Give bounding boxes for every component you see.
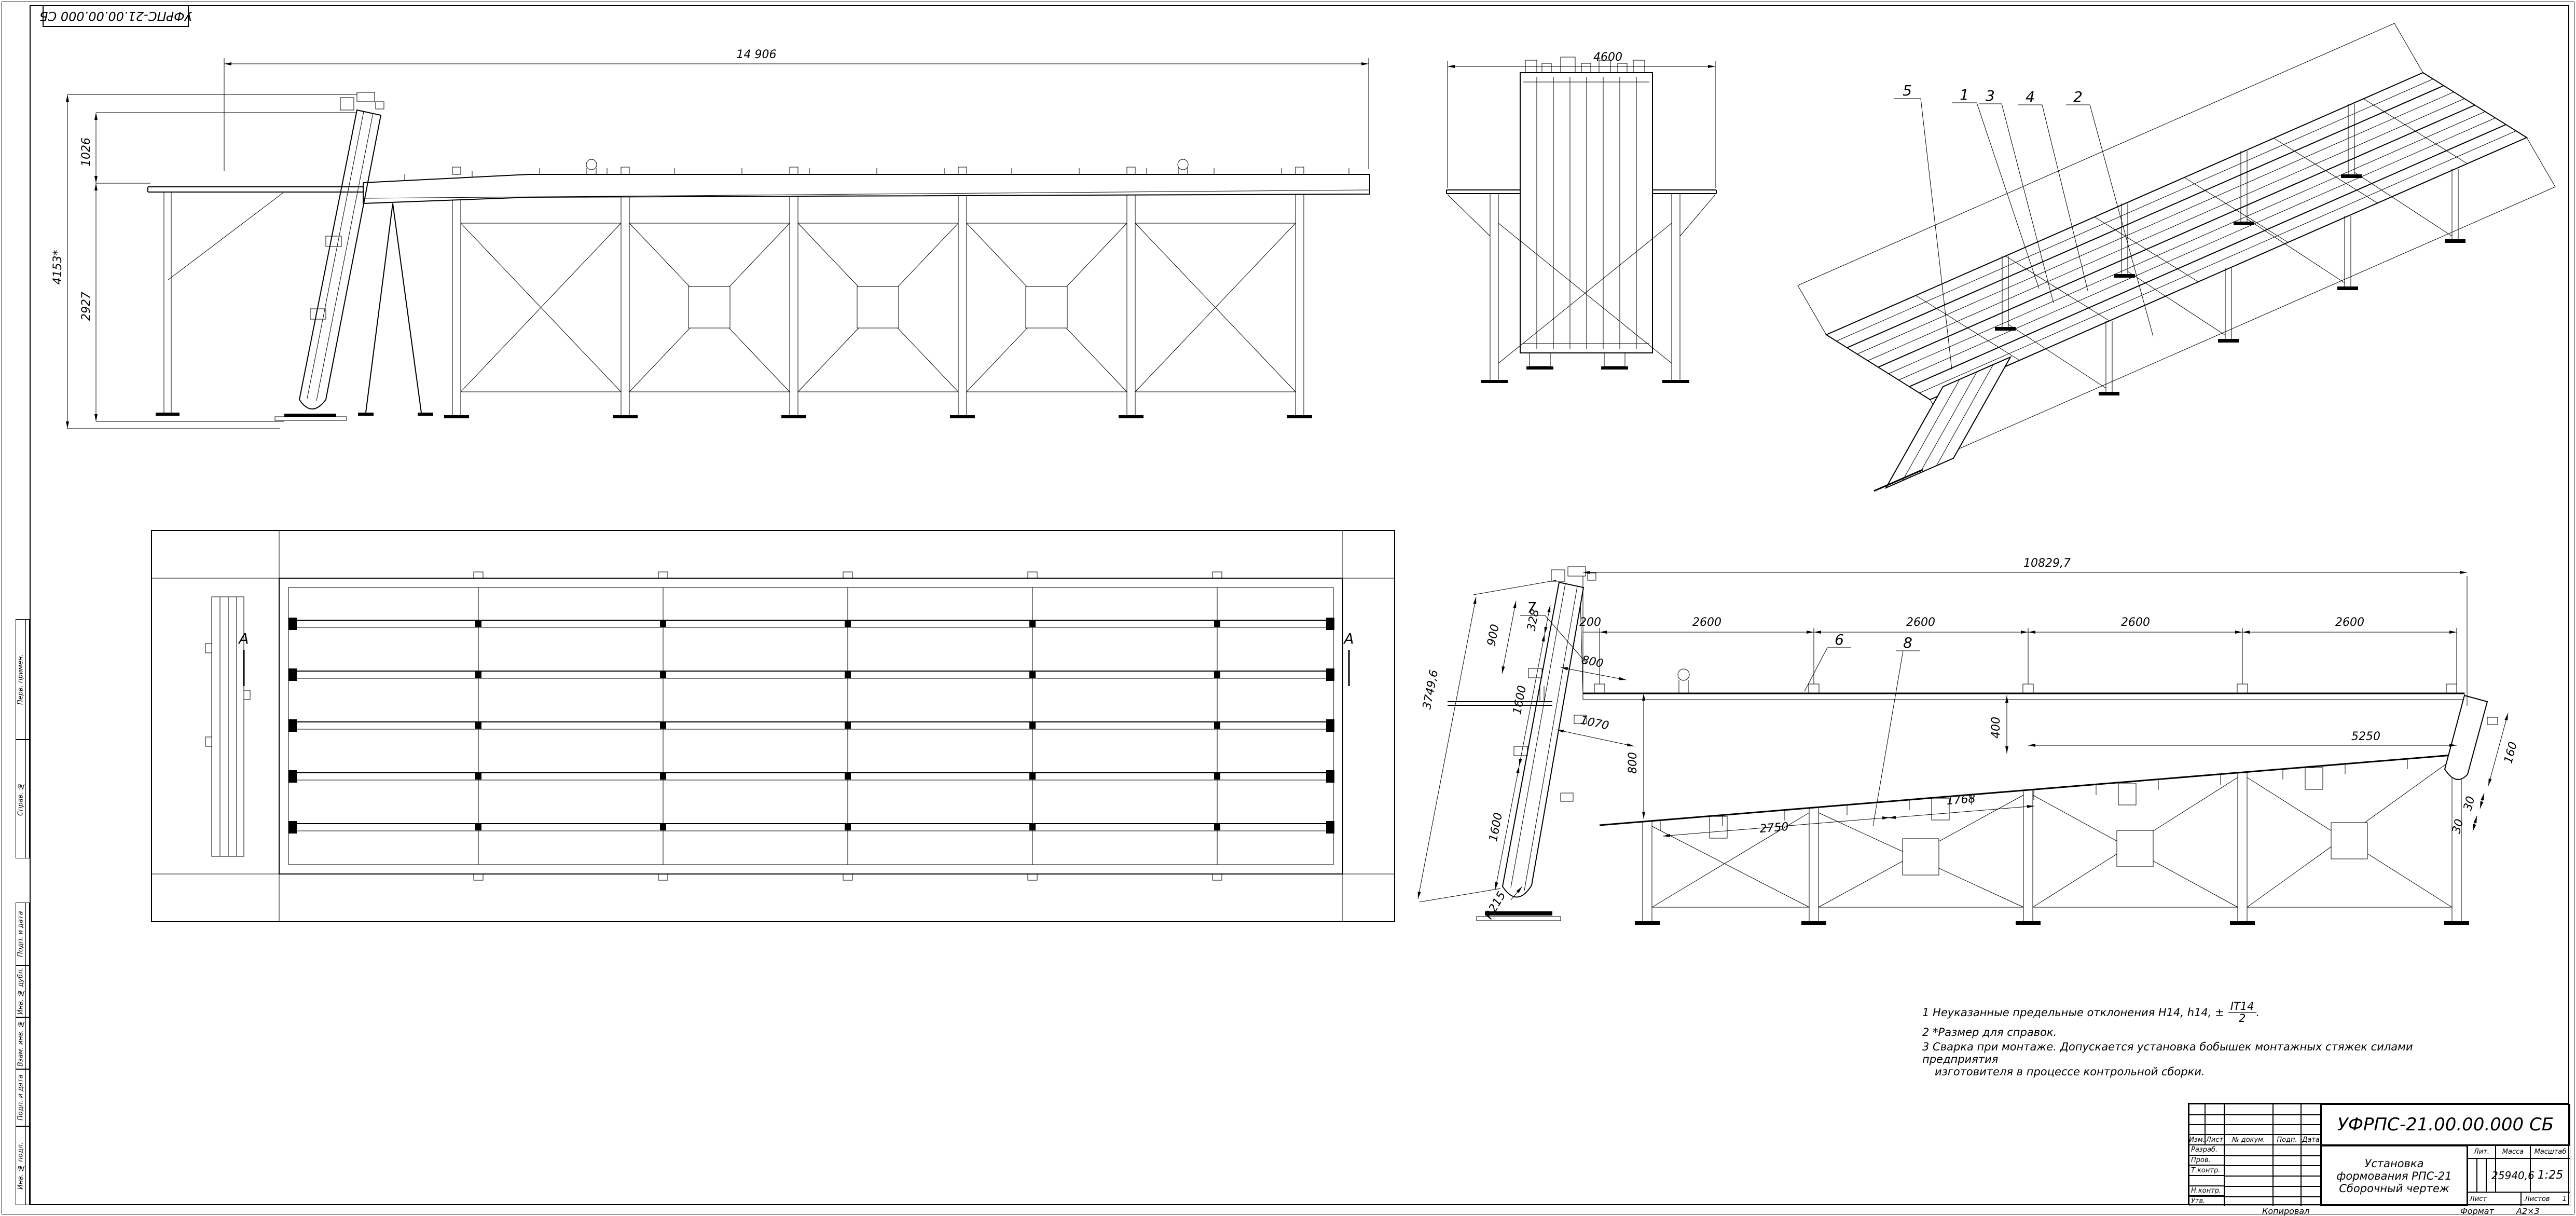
margin-cell-perv-primen: Перв. примен. — [16, 619, 30, 740]
tb-massa-value: 25940,6 — [2496, 1158, 2530, 1192]
dim-side-800v: 800 — [1627, 752, 1640, 774]
front-dimensions: 14 906 4153* 1026 2927 — [51, 48, 1369, 429]
note-1-text: 1 Неуказанные предельные отклонения Н14,… — [1922, 1006, 2224, 1019]
view-plan: А А — [145, 524, 1401, 934]
dim-side-1600a: 1600 — [1511, 685, 1529, 716]
dim-side-2750: 2750 — [1759, 821, 1789, 836]
drawing-sheet: УФРПС-21.00.00.000 СБ Перв. примен. Спра… — [0, 0, 2576, 1216]
tb-listov: Листов 1 — [2521, 1192, 2570, 1206]
tb-name-line1: Установка — [2365, 1157, 2424, 1170]
dim-side-1070: 1070 — [1579, 714, 1610, 733]
tb-masshtab-label: Масштаб — [2530, 1145, 2570, 1158]
view-front-elevation: 14 906 4153* 1026 2927 — [31, 16, 1390, 472]
note-1-period: . — [2256, 1006, 2260, 1019]
front-structure — [148, 92, 1370, 420]
dim-front-overall-width: 14 906 — [737, 48, 777, 61]
view-isometric: 5 1 3 4 2 — [1733, 16, 2553, 483]
dim-front-h2: 2927 — [80, 292, 93, 321]
tb-list: Лист — [2205, 1135, 2224, 1145]
margin-label: Подп. и дата — [16, 903, 25, 965]
note-2: 2 *Размер для справок. — [1922, 1026, 2431, 1039]
tb-prov: Пров. — [2189, 1155, 2224, 1166]
tb-ndok: № докум. — [2224, 1135, 2273, 1145]
tb-listov-label: Листов — [2525, 1195, 2550, 1203]
dim-end-width: 4600 — [1593, 51, 1622, 64]
dim-side-2600-1: 2600 — [1692, 616, 1721, 629]
tb-grid-line — [2224, 1176, 2321, 1177]
tb-lit-cell — [2468, 1158, 2477, 1192]
dim-side-30a: 30 — [2461, 795, 2477, 813]
tb-empty-row — [2189, 1176, 2224, 1186]
tb-name: Установка формования РПС-21 Сборочный че… — [2321, 1145, 2468, 1206]
tb-izm: Изм. — [2189, 1135, 2205, 1145]
dim-front-h1: 1026 — [80, 138, 93, 167]
note-1-fraction: IT14 2 — [2228, 1001, 2256, 1024]
dim-side-30b: 30 — [2450, 818, 2466, 836]
tb-scale-value: 1:25 — [2530, 1158, 2570, 1192]
fraction-numerator: IT14 — [2228, 1001, 2256, 1013]
dim-side-800p: 800 — [1580, 653, 1604, 671]
tb-grid-line — [2189, 1124, 2321, 1125]
margin-cell-vzam-inv: Взам. инв. № — [16, 1017, 30, 1069]
margin-label: Инв. № подл. — [16, 1127, 25, 1205]
margin-cell-inv-dubl: Инв. № дубл. — [16, 965, 30, 1017]
tb-grid-line — [2224, 1186, 2321, 1187]
tb-grid — [2224, 1104, 2273, 1135]
margin-cell-sprav-no: Справ. № — [16, 740, 30, 858]
tb-lit-label: Лит. — [2468, 1145, 2496, 1158]
margin-label: Перв. примен. — [16, 620, 25, 739]
view-side-dimensioned: 10829,7 200 2600 2600 2600 2600 800 400 … — [1416, 535, 2573, 945]
tb-tkontr: Т.контр. — [2189, 1165, 2224, 1176]
tb-grid — [2301, 1104, 2321, 1135]
balloon-3: 3 — [1986, 87, 1995, 104]
balloon-6: 6 — [1835, 631, 1844, 648]
tb-nkontr: Н.контр. — [2189, 1186, 2224, 1196]
dim-side-2600-4: 2600 — [2335, 616, 2364, 629]
section-label-a-right: А — [1343, 630, 1354, 647]
dim-front-overall-height: 4153* — [51, 250, 64, 285]
view-end: 4600 — [1437, 36, 1728, 446]
dim-side-2600-3: 2600 — [2121, 616, 2150, 629]
balloon-1: 1 — [1960, 86, 1969, 103]
side-balloons: 7 6 8 — [1520, 599, 1920, 826]
fraction-denominator: 2 — [2239, 1012, 2246, 1024]
end-structure — [1447, 57, 1716, 383]
tb-podp: Подп. — [2273, 1135, 2301, 1145]
kopiroval-label: Копировал — [2262, 1206, 2309, 1216]
note-1: 1 Неуказанные предельные отклонения Н14,… — [1922, 1001, 2431, 1024]
tb-name-line3: Сборочный чертеж — [2339, 1182, 2449, 1195]
tb-name-line2: формования РПС-21 — [2336, 1170, 2451, 1182]
margin-cell-inv-podl: Инв. № подл. — [16, 1126, 30, 1205]
dim-side-5250: 5250 — [2351, 730, 2380, 743]
balloon-8: 8 — [1903, 634, 1912, 651]
format-label: Формат — [2460, 1206, 2494, 1216]
tb-list-label: Лист — [2468, 1192, 2521, 1206]
margin-label: Справ. № — [16, 740, 25, 858]
margin-cell-podp-data-2: Подп. и дата — [16, 1069, 30, 1126]
balloon-5: 5 — [1903, 82, 1912, 99]
margin-label: Инв. № дубл. — [16, 966, 25, 1017]
dim-side-incline-total: 3749,6 — [1421, 669, 1441, 711]
format-value: А2×3 — [2516, 1206, 2540, 1216]
tb-grid-line — [2224, 1165, 2321, 1166]
tb-doc-number: УФРПС-21.00.00.000 СБ — [2321, 1104, 2570, 1145]
tb-grid-line — [2224, 1196, 2321, 1197]
tb-lit-cell — [2477, 1158, 2486, 1192]
margin-cell-podp-data-1: Подп. и дата — [16, 903, 30, 965]
note-3-cont: изготовителя в процессе контрольной сбор… — [1922, 1065, 2431, 1078]
dim-side-900: 900 — [1485, 623, 1502, 647]
dim-side-2600-2: 2600 — [1906, 616, 1935, 629]
tb-data: Дата — [2301, 1135, 2321, 1145]
section-label-a-left: А — [238, 630, 249, 647]
dim-side-overall: 10829,7 — [2023, 557, 2071, 570]
tb-grid — [2273, 1104, 2301, 1135]
balloon-4: 4 — [2026, 88, 2035, 105]
dim-side-400: 400 — [1990, 717, 2003, 739]
tb-utv: Утв. — [2189, 1196, 2224, 1207]
title-block: Изм. Лист № докум. Подп. Дата Разраб. Пр… — [2188, 1103, 2569, 1205]
side-dimensions: 10829,7 200 2600 2600 2600 2600 800 400 … — [1418, 557, 2520, 922]
tb-grid-line — [2189, 1114, 2321, 1115]
balloon-2: 2 — [2073, 88, 2083, 105]
tb-grid-line — [2224, 1155, 2321, 1156]
plan-structure — [151, 530, 1395, 922]
tb-grid — [2205, 1104, 2224, 1135]
tb-grid — [2189, 1104, 2205, 1135]
dim-side-1600b: 1600 — [1487, 812, 1505, 843]
dim-side-200: 200 — [1579, 616, 1601, 629]
note-3: 3 Сварка при монтаже. Допускается устано… — [1922, 1041, 2431, 1065]
tb-massa-label: Масса — [2496, 1145, 2530, 1158]
tb-listov-value: 1 — [2563, 1195, 2567, 1203]
margin-label: Подп. и дата — [16, 1070, 25, 1126]
tb-razrab: Разраб. — [2189, 1145, 2224, 1155]
margin-label: Взам. инв. № — [16, 1018, 25, 1069]
balloon-7: 7 — [1527, 599, 1536, 616]
technical-notes: 1 Неуказанные предельные отклонения Н14,… — [1922, 1001, 2431, 1080]
dim-side-160: 160 — [2502, 741, 2520, 765]
dim-side-1768: 1768 — [1946, 793, 1976, 808]
